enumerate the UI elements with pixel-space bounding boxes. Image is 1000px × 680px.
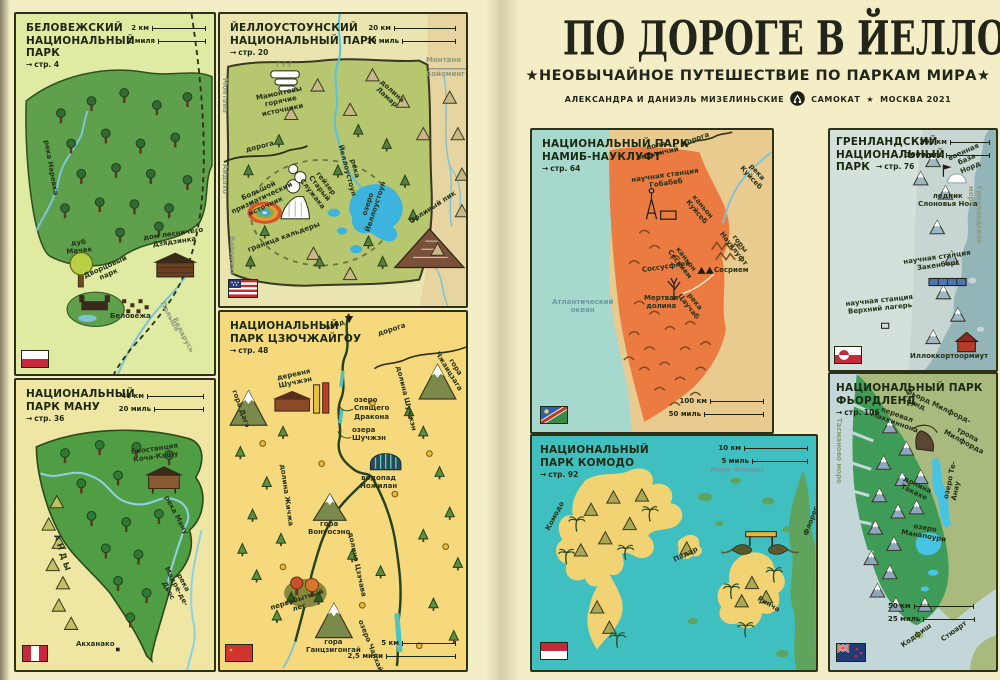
panel-jiuzhaigou: НАЦИОНАЛЬНЫЙ ПАРК ЦЗЮЧЖАЙГОУ →стр. 48 5 …: [218, 310, 468, 672]
scale-km-label: 10 км: [718, 444, 741, 452]
indonesia-flag: [540, 642, 568, 660]
scale-mi-label: 1 миля: [127, 37, 155, 45]
scale-km-label: 200 км: [919, 138, 947, 146]
page-arrow-icon: →: [26, 60, 32, 69]
panel-greenland: ГРЕНЛАНДСКИЙ НАЦИОНАЛЬНЫЙ ПАРК →стр. 76 …: [828, 128, 998, 372]
label-ittoqqortoormiit: Иллоккортоормиут: [910, 352, 988, 360]
nuorilang-waterfall-icon: [370, 454, 400, 470]
label-montana-west: Монтана: [221, 78, 229, 113]
label-greenland-sea: Гренландское море: [966, 186, 983, 244]
panel-title: НАЦИОНАЛЬНЫЙ ПАРК НАМИБ-НАУКЛУФТ: [542, 138, 689, 163]
panel-title: НАЦИОНАЛЬНЫЙ ПАРК ФЬОРДЛЕНД: [836, 382, 983, 407]
label-tasman-sea: Тасманово море: [835, 418, 843, 484]
label-montana-east: Монтана: [426, 56, 461, 64]
scale-bars: 50 км 25 миль: [888, 602, 975, 623]
page-arrow-icon: →: [230, 346, 236, 355]
scale-mi-label: 10 миль: [367, 37, 399, 45]
page-ref: стр. 48: [238, 346, 268, 355]
label-wyoming-west: Вайоминг: [228, 236, 236, 275]
label-belovezha: Беловежа: [110, 312, 151, 320]
panel-fiordland: НАЦИОНАЛЬНЫЙ ПАРК ФЬОРДЛЕНД →стр. 106 50…: [828, 372, 998, 672]
scale-bars: 200 км 100 миль: [906, 138, 990, 159]
scale-mi-label: 2,5 мили: [348, 652, 384, 660]
panel-belovezhsky: БЕЛОВЕЖСКИЙ НАЦИОНАЛЬНЫЙ ПАРК →стр. 4 2 …: [14, 12, 216, 376]
label-atlantic-ocean: Атлантический океан: [552, 298, 613, 315]
town-dot: [116, 648, 120, 652]
china-flag: [225, 644, 253, 662]
scale-km-label: 40 км: [121, 392, 144, 400]
greenland-flag: [834, 346, 862, 364]
scale-mi-label: 25 миль: [888, 615, 920, 623]
label-flores-sea: Море Флорес: [710, 466, 765, 474]
panel-title: НАЦИОНАЛЬНЫЙ ПАРК КОМОДО: [540, 444, 649, 469]
panel-yellowstone: ЙЕЛЛОУСТОУНСКИЙ НАЦИОНАЛЬНЫЙ ПАРК →стр. …: [218, 12, 468, 308]
label-wyoming-east: Вайоминг: [426, 70, 465, 78]
book-publisher: САМОКАТ: [811, 95, 860, 104]
page-ref: стр. 106: [844, 408, 879, 417]
new-zealand-flag: [836, 643, 866, 662]
upper-camp-hut-icon: [882, 323, 889, 328]
page-arrow-icon: →: [26, 414, 32, 423]
book-header: ПО ДОРОГЕ В ЙЕЛЛОУСТОУН ★НЕОБЫЧАЙНОЕ ПУТ…: [520, 14, 996, 108]
scale-km-label: 100 км: [679, 397, 707, 405]
label-idaho: Айдахо: [221, 164, 229, 194]
panel-title: ЙЕЛЛОУСТОУНСКИЙ НАЦИОНАЛЬНЫЙ ПАРК: [230, 22, 377, 47]
page-ref: стр. 92: [548, 470, 578, 479]
panel-title: НАЦИОНАЛЬНЫЙ ПАРК ЦЗЮЧЖАЙГОУ: [230, 320, 361, 345]
snow-mountains: [230, 365, 456, 638]
book-subtitle: ★НЕОБЫЧАЙНОЕ ПУТЕШЕСТВИЕ ПО ПАРКАМ МИРА★: [520, 68, 996, 84]
label-deadvlei: Мертвая долина: [644, 294, 678, 311]
dragons-and-table-icon: [721, 532, 798, 555]
panel-namib: НАЦИОНАЛЬНЫЙ ПАРК НАМИБ-НАУКЛУФТ →стр. 6…: [530, 128, 774, 434]
scale-km-label: 5 км: [381, 639, 399, 647]
book-gutter: [486, 0, 520, 680]
forester-house-icon: [153, 253, 198, 277]
page-arrow-icon: →: [230, 48, 236, 57]
book-spread: БЕЛОВЕЖСКИЙ НАЦИОНАЛЬНЫЙ ПАРК →стр. 4 2 …: [0, 0, 1000, 680]
label-shuzheng-lakes: озера Шучжэн: [352, 426, 386, 443]
scale-mi-label: 100 миль: [906, 151, 943, 159]
book-city-year: МОСКВА 2021: [880, 95, 951, 104]
star-icon: ★: [866, 95, 874, 104]
label-sesriem: Сесрием: [714, 266, 748, 274]
scale-bars: 100 км 50 миль: [669, 397, 764, 418]
scale-bars: 10 км 5 миль: [718, 444, 808, 465]
scale-bars: 2 км 1 миля: [127, 24, 206, 45]
label-wonuo-mountain: гора Вонуосэно: [308, 520, 350, 537]
label-akhanako: Акханако: [76, 640, 115, 648]
namibia-flag: [540, 406, 568, 424]
label-waterfall: водопад Ножилан: [360, 474, 397, 491]
scale-mi-label: 20 миль: [119, 405, 151, 413]
scale-bars: 40 км 20 миль: [119, 392, 204, 413]
label-dragon-lake: озеро Спящего Дракона: [354, 396, 389, 421]
scale-km-label: 20 км: [368, 24, 391, 32]
book-authors: АЛЕКСАНДРА И ДАНИЭЛЬ МИЗЕЛИНЬСКИЕ: [565, 95, 784, 104]
label-oak: дуб Мачек: [65, 237, 93, 256]
page-arrow-icon: →: [542, 164, 548, 173]
page-arrow-icon: →: [836, 408, 842, 417]
scale-bars: 5 км 2,5 мили: [348, 639, 457, 660]
page-ref: стр. 4: [34, 60, 59, 69]
page-ref: стр. 36: [34, 414, 64, 423]
page-ref: стр. 20: [238, 48, 268, 57]
scale-mi-label: 5 миль: [722, 457, 750, 465]
usa-flag: [228, 279, 258, 298]
scale-km-label: 50 км: [888, 602, 911, 610]
scale-km-label: 2 км: [131, 24, 149, 32]
book-title: ПО ДОРОГЕ В ЙЕЛЛОУСТОУН: [563, 14, 953, 63]
panel-title: БЕЛОВЕЖСКИЙ НАЦИОНАЛЬНЫЙ ПАРК: [26, 22, 135, 60]
poland-flag: [21, 350, 49, 368]
page-arrow-icon: →: [876, 162, 882, 171]
panel-komodo: НАЦИОНАЛЬНЫЙ ПАРК КОМОДО →стр. 92 10 км …: [530, 434, 818, 672]
panel-manu: НАЦИОНАЛЬНЫЙ ПАРК МАНУ →стр. 36 40 км 20…: [14, 378, 216, 672]
jiuzhaigou-map-art: [220, 312, 466, 670]
page-ref: стр. 76: [884, 162, 914, 171]
scale-bars: 20 км 10 миль: [367, 24, 456, 45]
page-arrow-icon: →: [540, 470, 546, 479]
scale-mi-label: 50 миль: [669, 410, 701, 418]
zackenberg-station-icon: [929, 278, 966, 285]
page-ref: стр. 64: [550, 164, 580, 173]
samokat-logo-icon: [790, 91, 805, 108]
peru-flag: [22, 645, 48, 662]
